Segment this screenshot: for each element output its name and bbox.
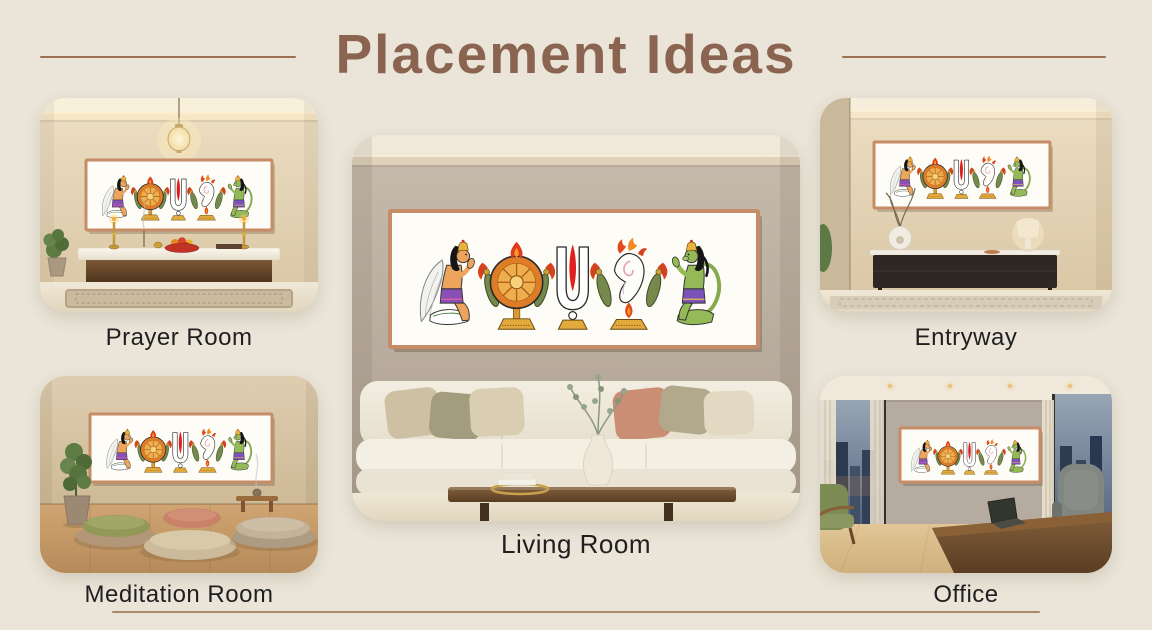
rug: [66, 290, 292, 307]
copper-dish: [984, 250, 1000, 254]
cove-light: [352, 155, 800, 165]
altar-platform-base: [86, 260, 272, 282]
office-label: Office: [820, 581, 1112, 609]
artwork-frame: [90, 414, 275, 486]
entryway-photo: [820, 98, 1112, 312]
pillow-cream: [703, 390, 755, 436]
wall-shade-right: [1096, 98, 1112, 312]
cove-shadow: [352, 165, 800, 167]
office-photo: [820, 376, 1112, 573]
cove-shadow: [820, 118, 1112, 120]
entryway-label: Entryway: [820, 324, 1112, 352]
artwork-frame: [900, 428, 1043, 486]
meditation-room-scene: [40, 376, 318, 573]
artwork-frame: [874, 142, 1053, 212]
ceiling: [352, 135, 800, 157]
book: [216, 242, 242, 249]
wall-shade-right: [306, 376, 318, 506]
entryway-scene: [820, 98, 1112, 312]
office-scene: [820, 376, 1112, 573]
bottom-divider-rule: [112, 611, 1040, 613]
side-wall-panel: [820, 98, 851, 312]
wall-shade-left: [40, 376, 52, 506]
prayer-room-label: Prayer Room: [40, 324, 318, 352]
cove-light: [820, 110, 1112, 118]
placement-ideas-poster: Placement Ideas: [0, 0, 1152, 630]
page-title: Placement Ideas: [0, 22, 1132, 86]
rug: [830, 296, 1102, 309]
wall-shade-right: [304, 98, 318, 312]
wall-shade-left: [40, 98, 54, 312]
pillow-light-beige: [469, 387, 525, 438]
living-room-label: Living Room: [352, 529, 800, 560]
title-rule-right: [842, 56, 1106, 58]
meditation-room-label: Meditation Room: [40, 581, 318, 609]
living-room-scene: [352, 135, 800, 521]
sofa-seat: [356, 439, 796, 495]
artwork-frame: [390, 211, 762, 352]
meditation-room-photo: [40, 376, 318, 573]
prayer-room-scene: [40, 98, 318, 312]
ceiling: [820, 98, 1112, 112]
prayer-room-photo: [40, 98, 318, 312]
brass-bell: [154, 242, 162, 248]
living-room-photo: [352, 135, 800, 521]
